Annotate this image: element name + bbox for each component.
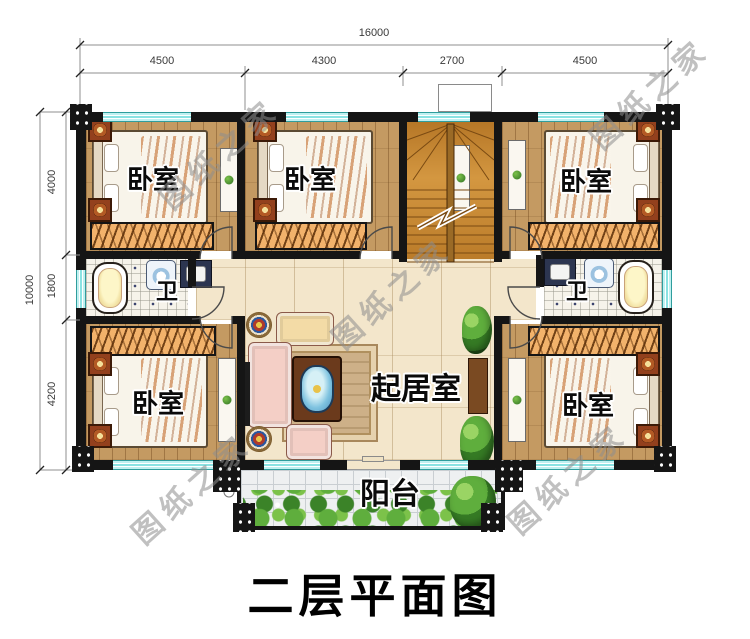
wall-interior — [232, 251, 360, 259]
balcony-junction-column — [495, 460, 523, 492]
balcony-corner-column — [233, 503, 255, 532]
corner-column — [656, 104, 680, 130]
room-label-bath: 卫 — [156, 274, 178, 306]
wall-interior — [76, 251, 200, 259]
nightstand — [636, 198, 660, 222]
page-title: 二层平面图 — [0, 560, 750, 626]
sink-vanity — [180, 260, 212, 288]
wall-interior — [237, 122, 245, 259]
wall-interior — [232, 316, 245, 324]
window — [538, 112, 604, 122]
wardrobe — [90, 222, 214, 250]
window — [264, 460, 320, 470]
room-label-bedroom: 卧室 — [562, 386, 614, 423]
wall-interior — [399, 122, 407, 262]
room-label-living: 起居室 — [371, 364, 461, 408]
room-label-bath: 卫 — [566, 274, 588, 306]
room-label-bedroom: 卧室 — [127, 160, 179, 197]
flue-outline — [438, 84, 492, 112]
balcony-junction-column — [213, 460, 241, 492]
round-side-table — [246, 426, 272, 452]
dresser — [508, 140, 526, 210]
dresser — [220, 148, 238, 212]
bathtub — [92, 262, 128, 314]
stairwell-floor — [407, 122, 494, 262]
room-label-bedroom: 卧室 — [132, 384, 184, 421]
window — [103, 112, 191, 122]
window — [536, 460, 614, 470]
floor-plan-sheet: 16000 4500 4300 2700 4500 10000 4000 180… — [0, 0, 750, 639]
balcony-wall-front — [237, 526, 505, 530]
window — [113, 460, 213, 470]
wall-interior — [494, 320, 502, 460]
wall-interior — [237, 320, 245, 460]
dresser — [452, 145, 470, 211]
dresser — [508, 358, 526, 442]
wall-interior — [542, 316, 672, 324]
room-label-bedroom: 卧室 — [560, 162, 612, 199]
window — [76, 270, 86, 308]
wall-interior — [494, 122, 502, 262]
nightstand — [88, 198, 112, 222]
dim-top-segment: 4500 — [545, 55, 625, 67]
wall-interior — [494, 316, 510, 324]
wardrobe — [255, 222, 367, 250]
wall-interior — [542, 251, 672, 259]
dim-left-total: 10000 — [24, 250, 36, 330]
nightstand — [88, 424, 112, 448]
toilet — [584, 258, 614, 288]
nightstand — [636, 424, 660, 448]
wardrobe — [528, 222, 660, 250]
nightstand — [636, 352, 660, 376]
dim-top-total: 16000 — [334, 27, 414, 39]
dim-top-segment: 4500 — [122, 55, 202, 67]
wall-interior — [76, 316, 200, 324]
sofa — [248, 342, 292, 428]
room-label-balcony: 阳台 — [360, 469, 420, 513]
balcony-corner-column — [481, 503, 503, 532]
coffee-table — [292, 356, 342, 422]
threshold-step — [362, 456, 384, 462]
window — [662, 270, 672, 308]
window — [420, 460, 468, 470]
corner-column — [70, 104, 92, 130]
side-cabinet — [468, 358, 488, 414]
nightstand — [253, 198, 277, 222]
window — [418, 112, 470, 122]
round-side-table — [246, 312, 272, 338]
sofa — [276, 312, 334, 346]
armchair — [286, 424, 332, 460]
wall-interior — [392, 251, 407, 259]
window — [286, 112, 348, 122]
corner-column — [72, 446, 94, 472]
corner-column — [654, 446, 676, 472]
dim-top-segment: 4300 — [284, 55, 364, 67]
dim-top-segment: 2700 — [412, 55, 492, 67]
nightstand — [88, 352, 112, 376]
room-label-bedroom: 卧室 — [284, 160, 336, 197]
bathtub — [618, 260, 654, 314]
dim-left-segment: 4000 — [46, 142, 58, 222]
dresser — [218, 358, 236, 442]
wall-interior — [188, 255, 196, 287]
dim-left-segment: 1800 — [46, 246, 58, 326]
wall-interior — [494, 251, 510, 259]
wall-interior — [536, 255, 544, 287]
dim-left-segment: 4200 — [46, 354, 58, 434]
